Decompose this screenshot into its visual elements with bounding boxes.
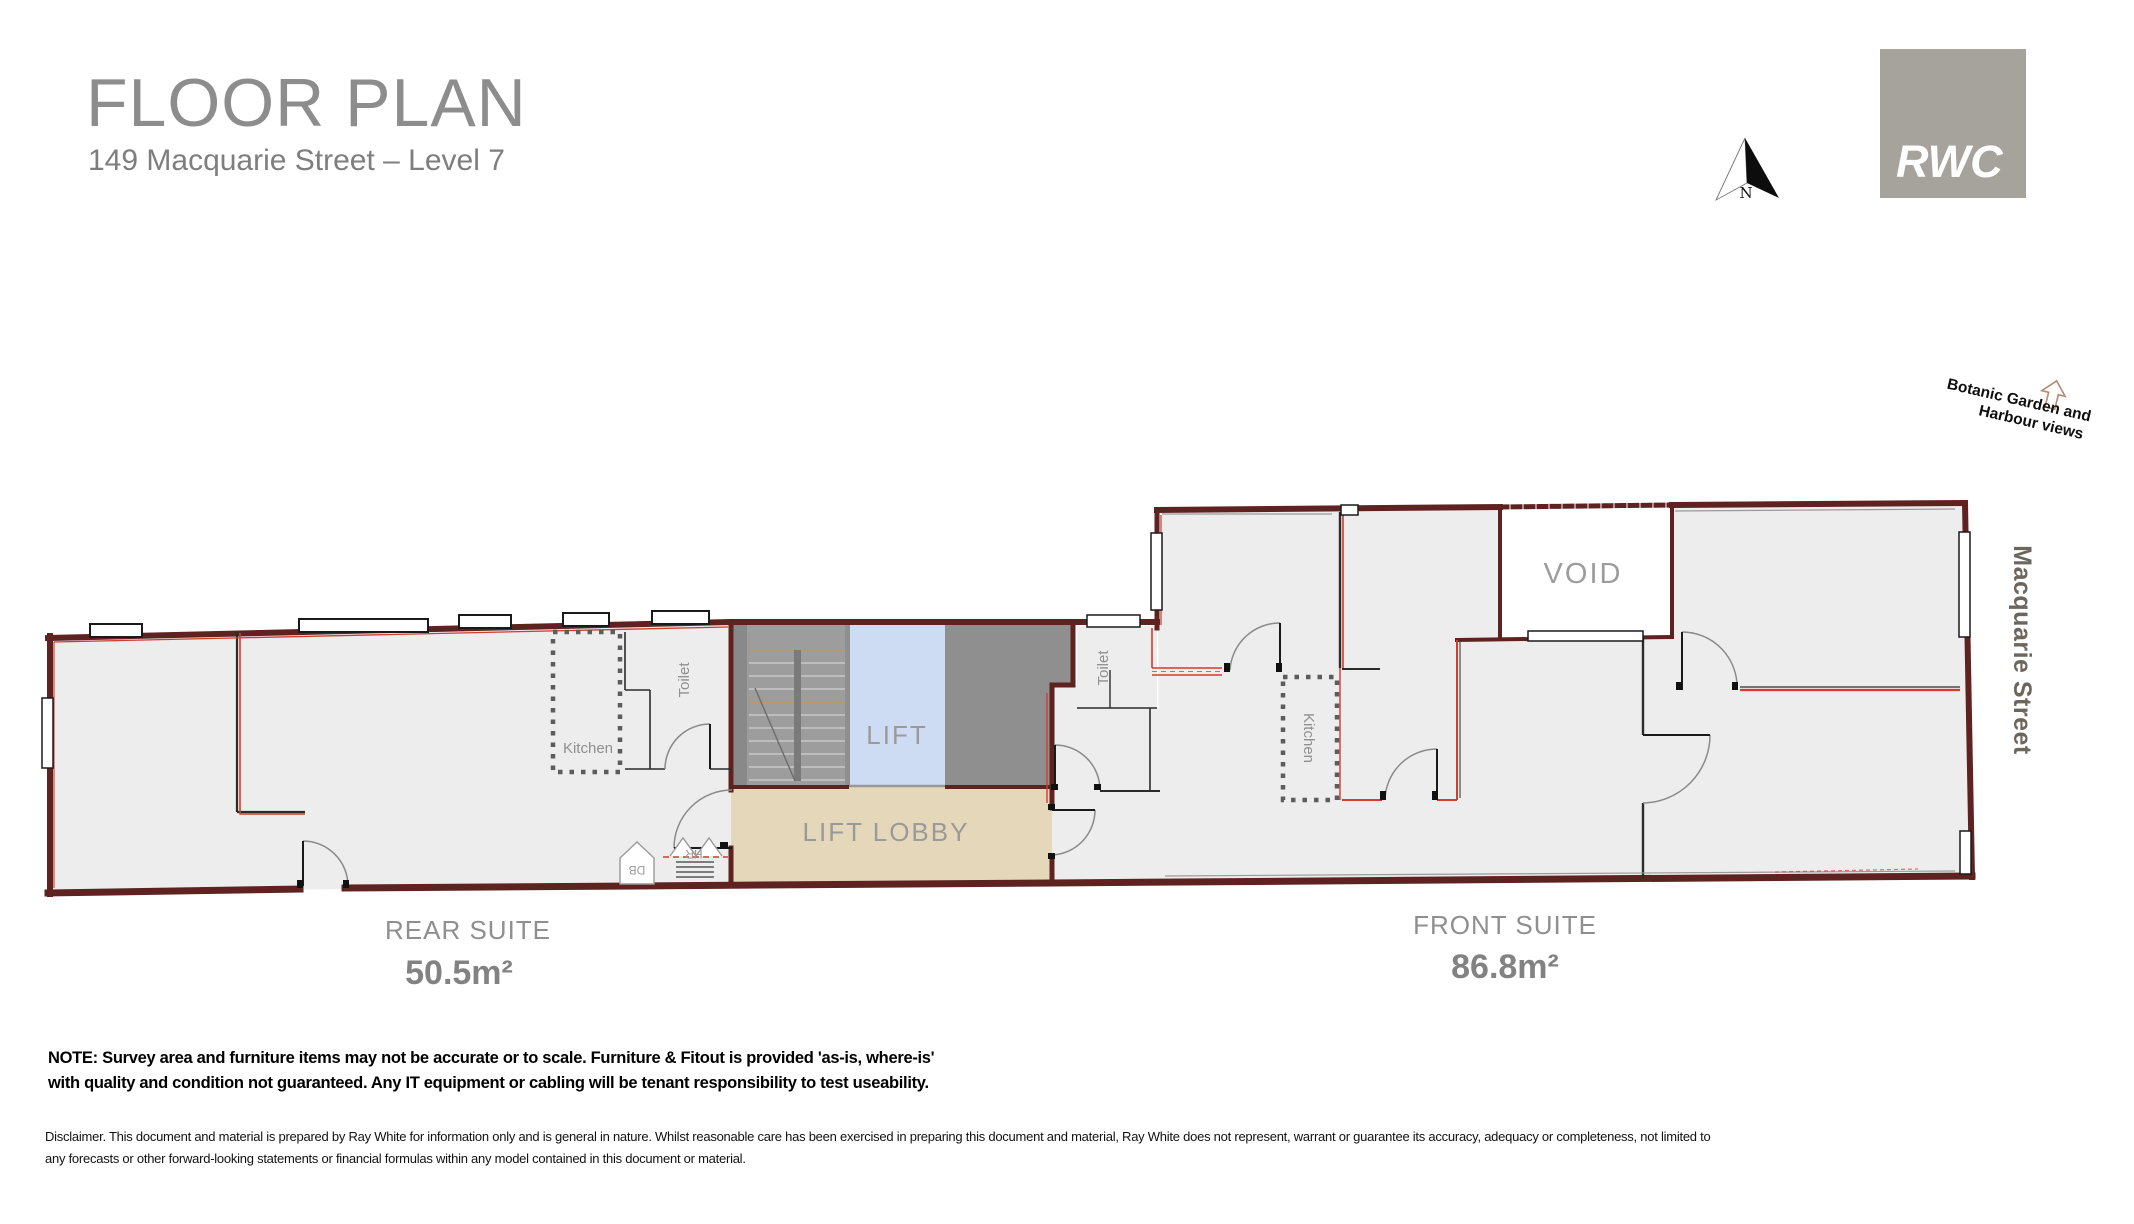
front-suite-name: FRONT SUITE bbox=[1413, 910, 1597, 940]
void-label: VOID bbox=[1544, 558, 1623, 590]
front-suite-area: 86.8m² bbox=[1451, 948, 1559, 986]
corridor-floor bbox=[1052, 708, 1160, 883]
toilet-rear-label: Toilet bbox=[676, 662, 693, 698]
window bbox=[1960, 831, 1971, 874]
stair-wall-strip bbox=[733, 622, 747, 787]
survey-note: NOTE: Survey area and furniture items ma… bbox=[48, 1046, 934, 1095]
stair-rail bbox=[794, 650, 801, 781]
view-note: Botanic Garden and Harbour views bbox=[1945, 376, 2092, 443]
lift-label: LIFT bbox=[866, 720, 927, 750]
floor-fills bbox=[50, 503, 1972, 893]
window bbox=[299, 619, 428, 632]
survey-note-line2: with quality and condition not guarantee… bbox=[48, 1071, 934, 1096]
toilet-front-floor bbox=[1077, 626, 1157, 710]
window bbox=[1341, 505, 1358, 515]
window bbox=[42, 698, 53, 768]
disclaimer: Disclaimer. This document and material i… bbox=[45, 1126, 1711, 1169]
north-letter: N bbox=[1739, 184, 1752, 202]
lift-wall-right bbox=[945, 622, 950, 787]
window bbox=[459, 615, 511, 628]
floor-plan-drawing: DB HR LIFT LIFT LOBBY VOID Kitchen Toile… bbox=[0, 0, 2134, 1224]
north-arrow-icon: N bbox=[1716, 138, 1779, 202]
street-label: Macquarie Street bbox=[2008, 545, 2036, 755]
lift-wall-left bbox=[845, 622, 850, 787]
void-dotted-wall bbox=[1500, 505, 1672, 507]
rear-suite-area: 50.5m² bbox=[405, 954, 513, 992]
disclaimer-line1: Disclaimer. This document and material i… bbox=[45, 1126, 1711, 1148]
disclaimer-line2: any forecasts or other forward-looking s… bbox=[45, 1148, 1711, 1170]
rear-suite-name: REAR SUITE bbox=[385, 915, 551, 945]
toilet-front-label: Toilet bbox=[1095, 650, 1112, 686]
window bbox=[563, 613, 609, 626]
survey-note-line1: NOTE: Survey area and furniture items ma… bbox=[48, 1046, 934, 1071]
window bbox=[1528, 631, 1643, 641]
window bbox=[90, 624, 142, 637]
window bbox=[652, 611, 709, 624]
kitchen-front-label: Kitchen bbox=[1300, 713, 1317, 763]
db-label: DB bbox=[629, 863, 646, 877]
window bbox=[1151, 533, 1162, 610]
lift-lobby-label: LIFT LOBBY bbox=[803, 817, 970, 847]
hr-label: HR bbox=[685, 847, 703, 861]
window bbox=[1087, 615, 1140, 627]
lift-shaft bbox=[847, 622, 947, 787]
window bbox=[1959, 532, 1970, 637]
page: { "header": { "title": "FLOOR PLAN", "su… bbox=[0, 0, 2134, 1224]
stairwell-floor bbox=[733, 622, 847, 787]
kitchen-rear-label: Kitchen bbox=[563, 740, 613, 757]
